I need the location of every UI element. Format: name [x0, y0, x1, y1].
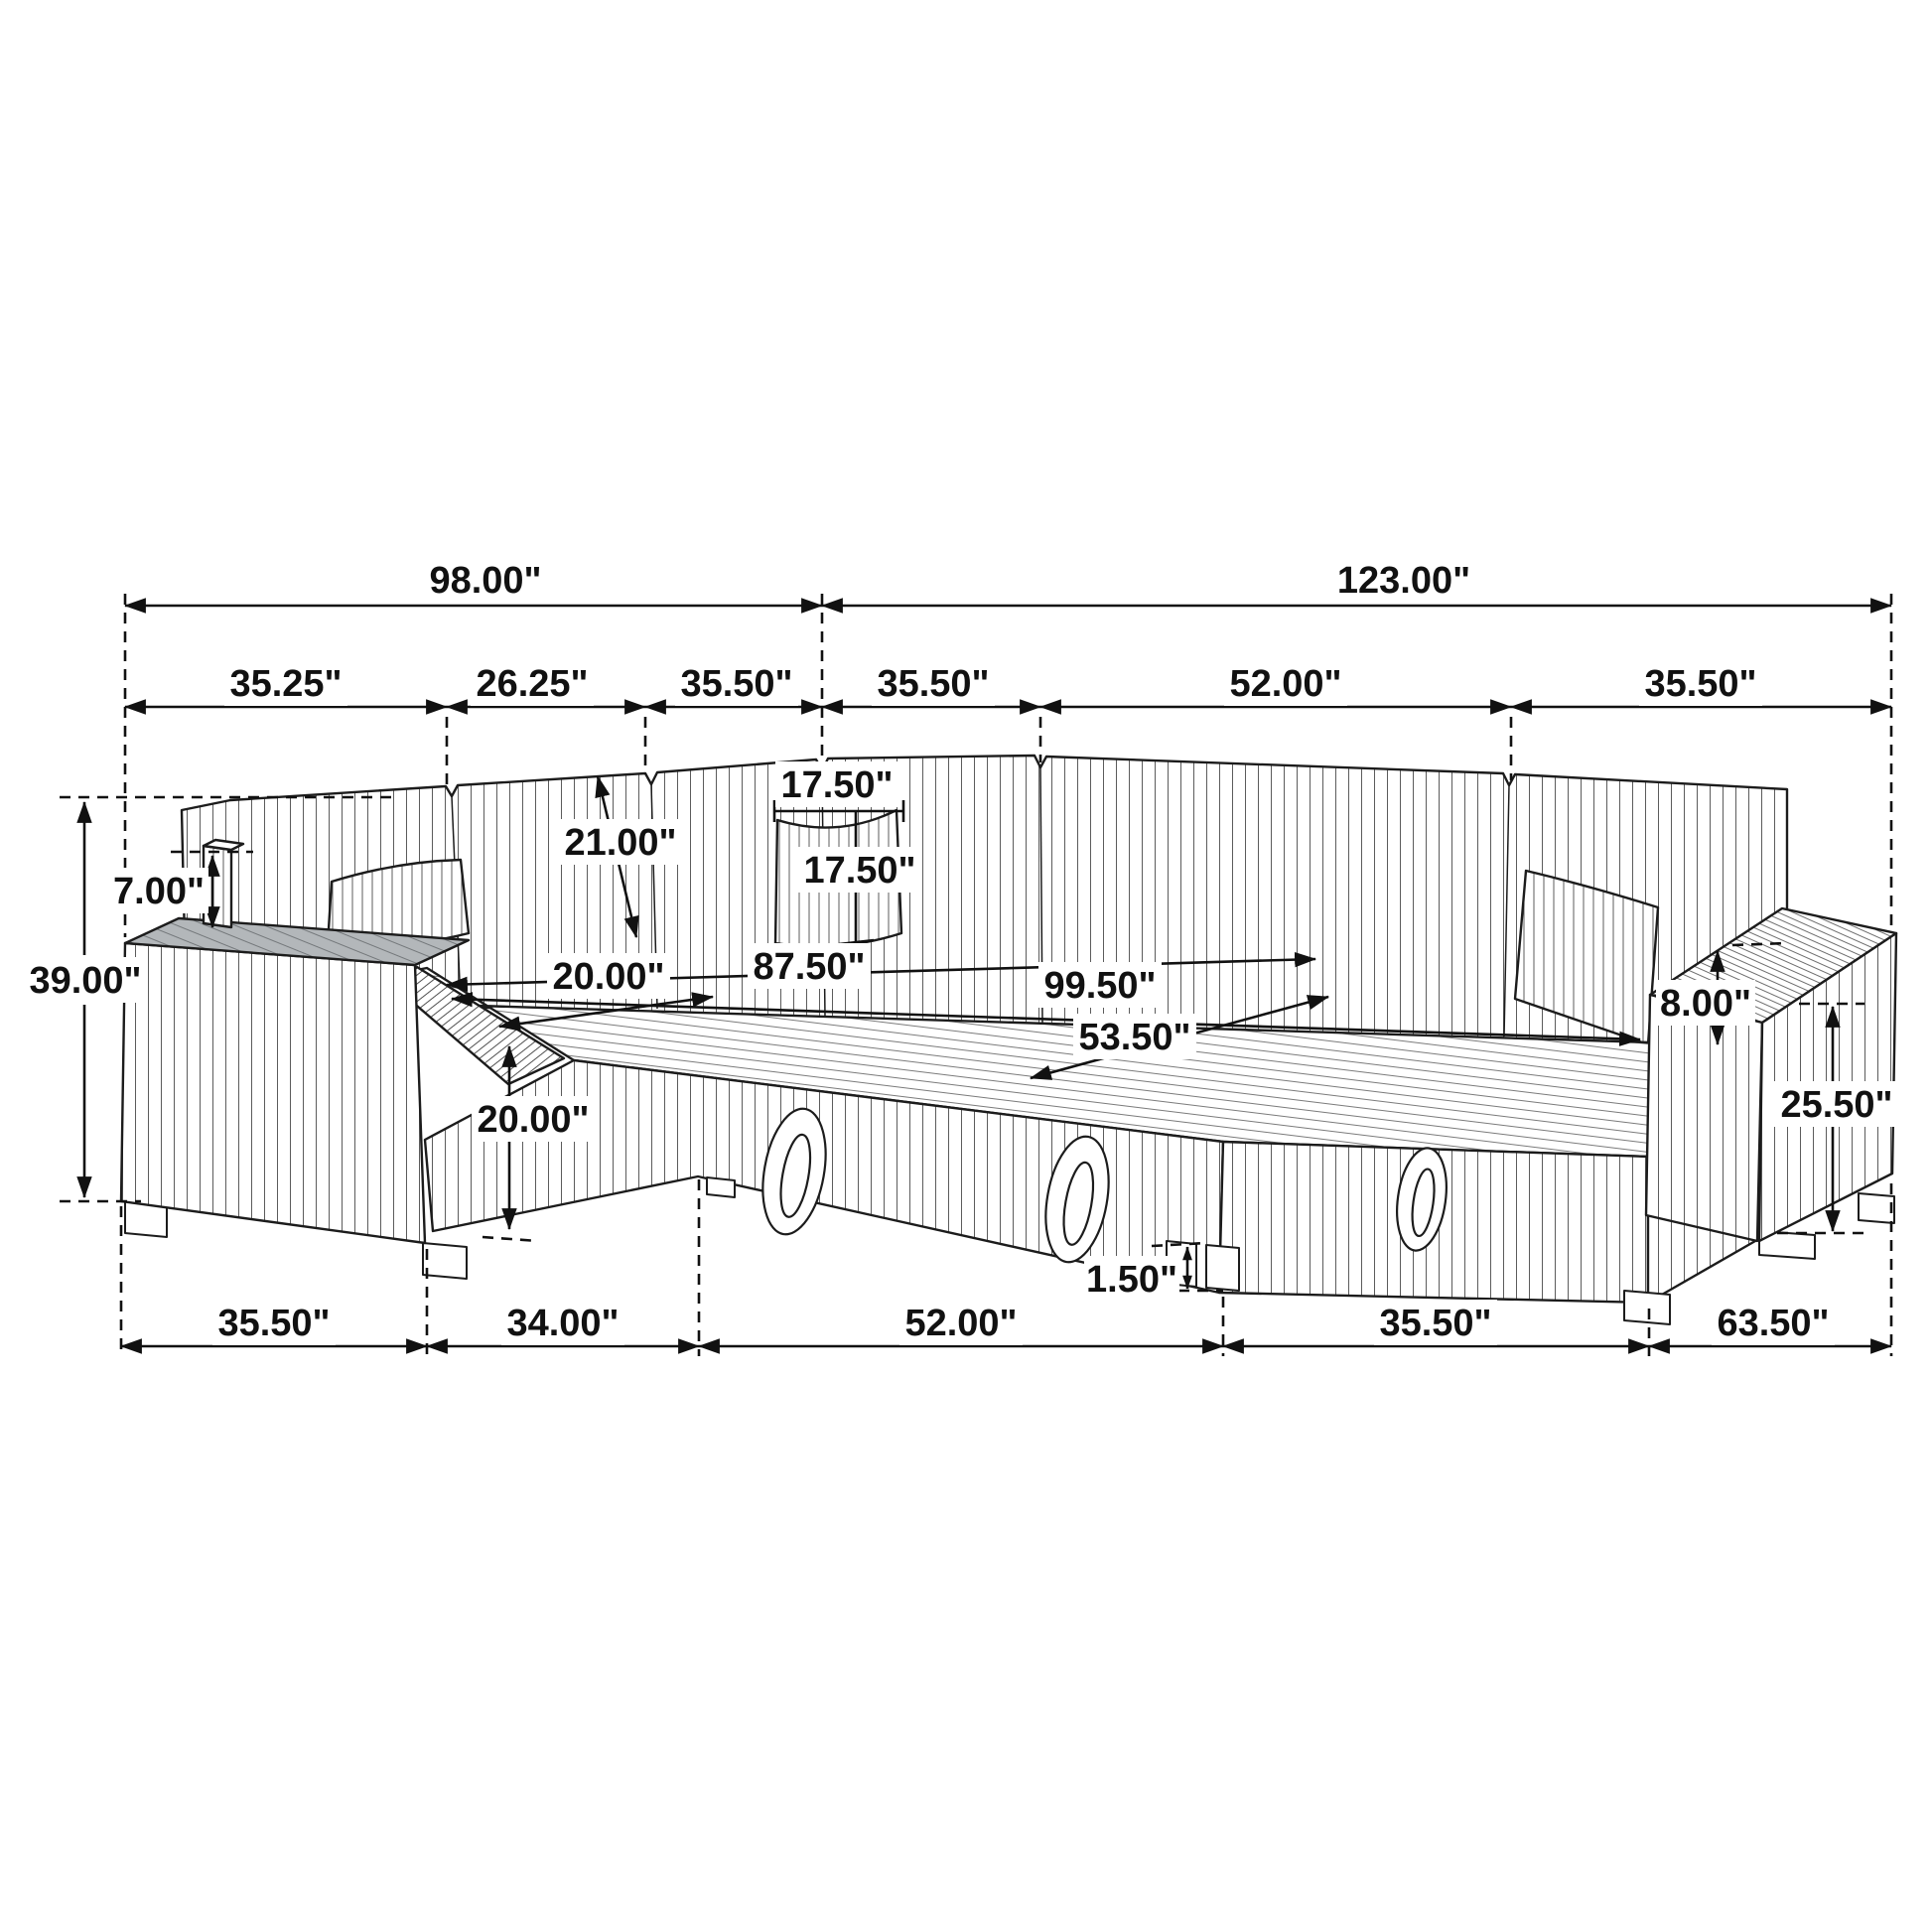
- dim-overall-back-left-label: 98.00": [429, 560, 541, 602]
- dim-pillow-height: 17.50": [798, 847, 921, 893]
- dim-seat-height: 20.00": [472, 1096, 595, 1142]
- dim-bed-length-inner-label: 87.50": [753, 946, 865, 988]
- dim-seat-height-label: 20.00": [477, 1099, 589, 1141]
- dim-bottom-seg-2-label: 34.00": [506, 1303, 619, 1344]
- dim-top-seg-5: 52.00": [1224, 660, 1347, 706]
- dim-top-seg-6-label: 35.50": [1644, 663, 1756, 705]
- dim-top-seg-3-label: 35.50": [680, 663, 792, 705]
- dim-top-seg-1-label: 35.25": [229, 663, 342, 705]
- left-arm-front-face: [121, 943, 425, 1243]
- ext-seat-height-bottom: [483, 1237, 538, 1241]
- dim-leg-height: 1.50": [1084, 1256, 1179, 1302]
- dim-top-seg-2-label: 26.25": [476, 663, 588, 705]
- dim-bottom-seg-1-label: 35.50": [217, 1303, 330, 1344]
- dim-pillow-width: 17.50": [775, 761, 898, 807]
- dim-top-seg-4: 35.50": [872, 660, 995, 706]
- dim-total-height-label: 39.00": [29, 960, 141, 1002]
- dim-arm-shelf-height-label: 7.00": [113, 871, 205, 912]
- foot-chaise-corner: [1624, 1291, 1670, 1324]
- foot-arm-right-rear: [1859, 1193, 1894, 1223]
- dim-arm-shelf-height: 7.00": [109, 868, 208, 913]
- dim-seat-depth-label: 20.00": [552, 956, 664, 998]
- dim-arm-above-seat-label: 8.00": [1660, 983, 1751, 1025]
- dim-pillow-height-label: 17.50": [803, 850, 915, 892]
- foot-bed-right-2: [1206, 1245, 1239, 1291]
- dim-top-seg-1: 35.25": [224, 660, 347, 706]
- dim-arm-height: 25.50": [1773, 1081, 1900, 1127]
- dim-top-seg-6: 35.50": [1639, 660, 1762, 706]
- dim-backrest-height: 21.00": [559, 819, 682, 865]
- dim-bed-length-outer: 99.50": [1038, 962, 1162, 1008]
- dim-bed-length-outer-label: 99.50": [1043, 965, 1156, 1007]
- dim-arm-above-seat: 8.00": [1656, 980, 1755, 1026]
- dim-bed-width-label: 53.50": [1078, 1017, 1190, 1058]
- dim-pillow-width-label: 17.50": [780, 764, 893, 806]
- dim-top-seg-3: 35.50": [675, 660, 798, 706]
- dim-total-height: 39.00": [25, 957, 146, 1003]
- dim-bed-length-inner: 87.50": [748, 943, 871, 989]
- diagram-canvas: 98.00" 123.00" 35.25" 26.25" 35.50" 35.5…: [0, 0, 1932, 1932]
- dim-top-seg-4-label: 35.50": [877, 663, 989, 705]
- dim-backrest-height-label: 21.00": [564, 822, 676, 864]
- dim-bottom-seg-1: 35.50": [212, 1300, 336, 1345]
- dim-bottom-seg-4-label: 35.50": [1379, 1303, 1491, 1344]
- dim-bottom-seg-3: 52.00": [899, 1300, 1023, 1345]
- right-arm-front-face: [1646, 995, 1762, 1241]
- dim-leg-height-label: 1.50": [1086, 1259, 1177, 1301]
- dim-bed-width: 53.50": [1073, 1014, 1196, 1059]
- sofa-dimension-diagram: 98.00" 123.00" 35.25" 26.25" 35.50" 35.5…: [0, 0, 1932, 1932]
- dim-bottom-seg-4: 35.50": [1374, 1300, 1497, 1345]
- dim-bottom-seg-5: 63.50": [1712, 1300, 1835, 1345]
- dim-overall-back-left: 98.00": [424, 557, 547, 603]
- dim-overall-back-right: 123.00": [1328, 557, 1479, 603]
- dim-bottom-seg-3-label: 52.00": [904, 1303, 1017, 1344]
- dim-arm-height-label: 25.50": [1780, 1084, 1892, 1126]
- dim-bottom-seg-2: 34.00": [501, 1300, 624, 1345]
- foot-bed-left: [707, 1177, 735, 1197]
- dim-top-seg-5-label: 52.00": [1229, 663, 1341, 705]
- dim-bottom-seg-5-label: 63.50": [1717, 1303, 1829, 1344]
- foot-arm-left-right: [423, 1243, 467, 1279]
- dim-seat-depth: 20.00": [547, 953, 670, 999]
- dim-overall-back-right-label: 123.00": [1337, 560, 1470, 602]
- dim-top-seg-2: 26.25": [471, 660, 594, 706]
